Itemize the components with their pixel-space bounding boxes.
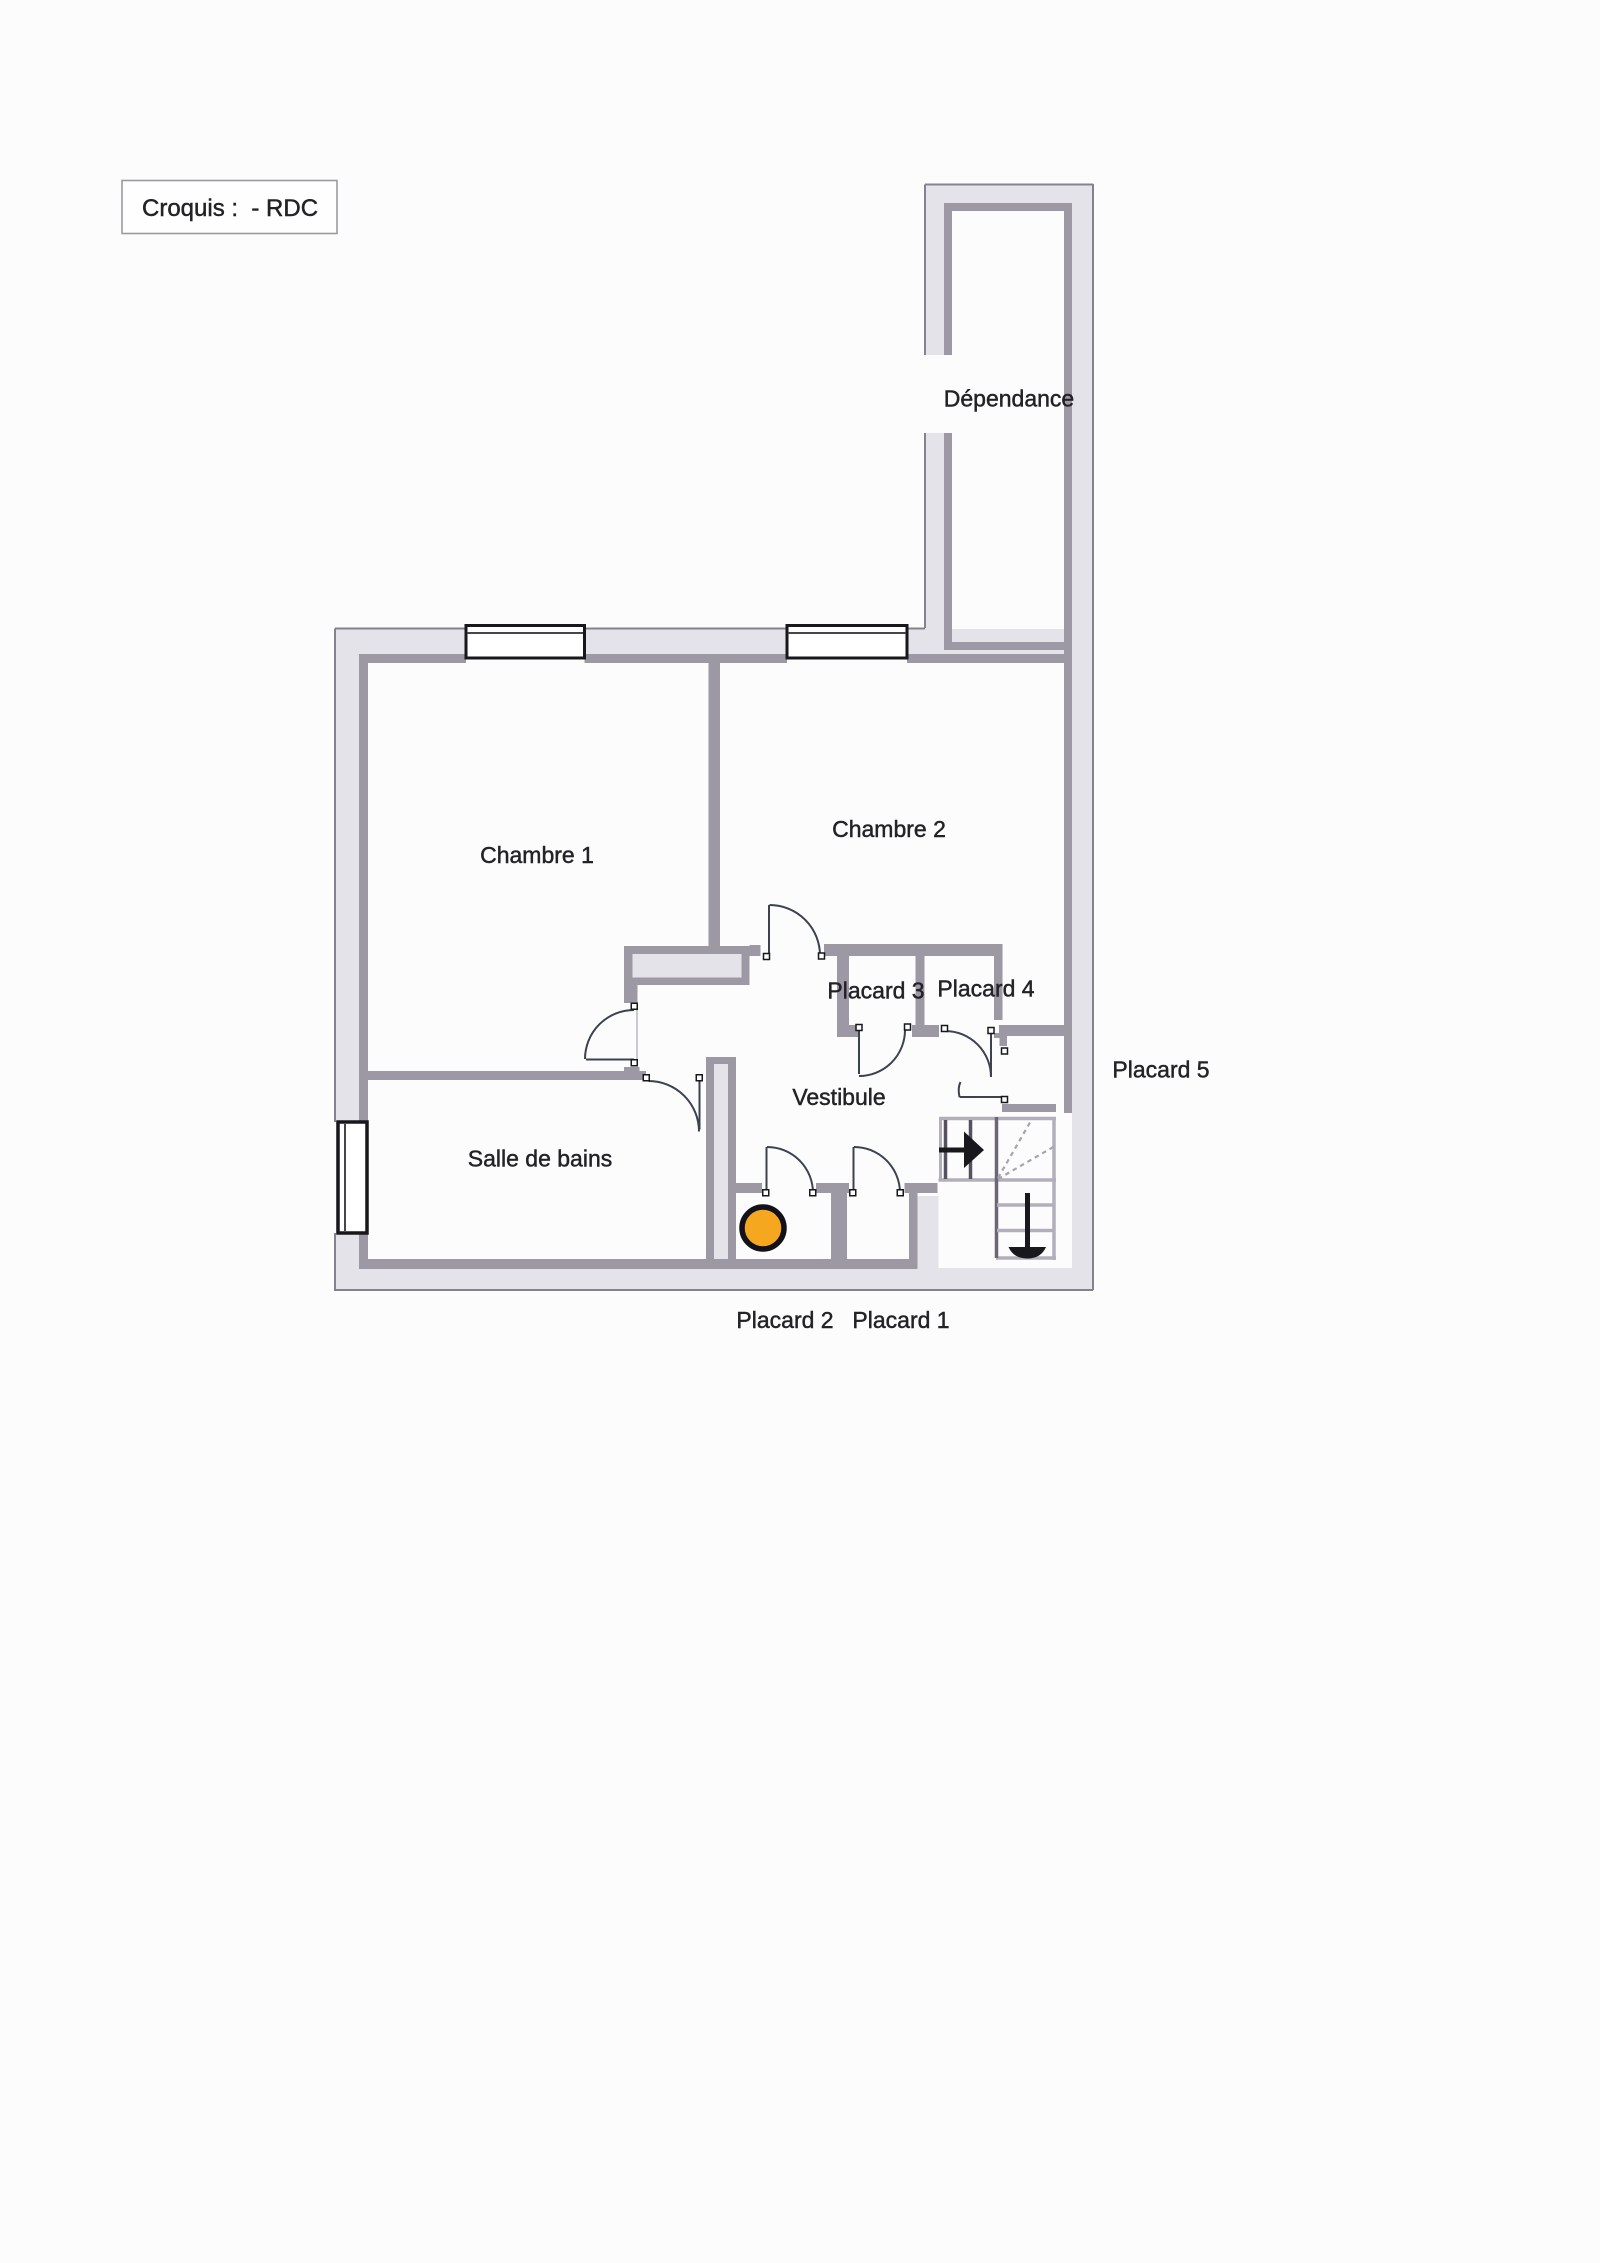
- svg-text:Vestibule: Vestibule: [792, 1084, 885, 1110]
- svg-text:Salle de bains: Salle de bains: [468, 1146, 613, 1172]
- svg-text:Chambre 2: Chambre 2: [832, 816, 946, 842]
- svg-text:Placard 5: Placard 5: [1112, 1057, 1209, 1083]
- svg-text:Chambre 1: Chambre 1: [480, 842, 594, 868]
- svg-text:Croquis : - RDC: Croquis : - RDC: [142, 195, 318, 222]
- svg-text:Placard 2: Placard 2: [736, 1307, 833, 1333]
- svg-text:Dépendance: Dépendance: [944, 386, 1074, 412]
- svg-text:Placard 3: Placard 3: [827, 978, 924, 1004]
- svg-text:Placard 4: Placard 4: [937, 976, 1034, 1002]
- svg-text:Placard 1: Placard 1: [852, 1307, 949, 1333]
